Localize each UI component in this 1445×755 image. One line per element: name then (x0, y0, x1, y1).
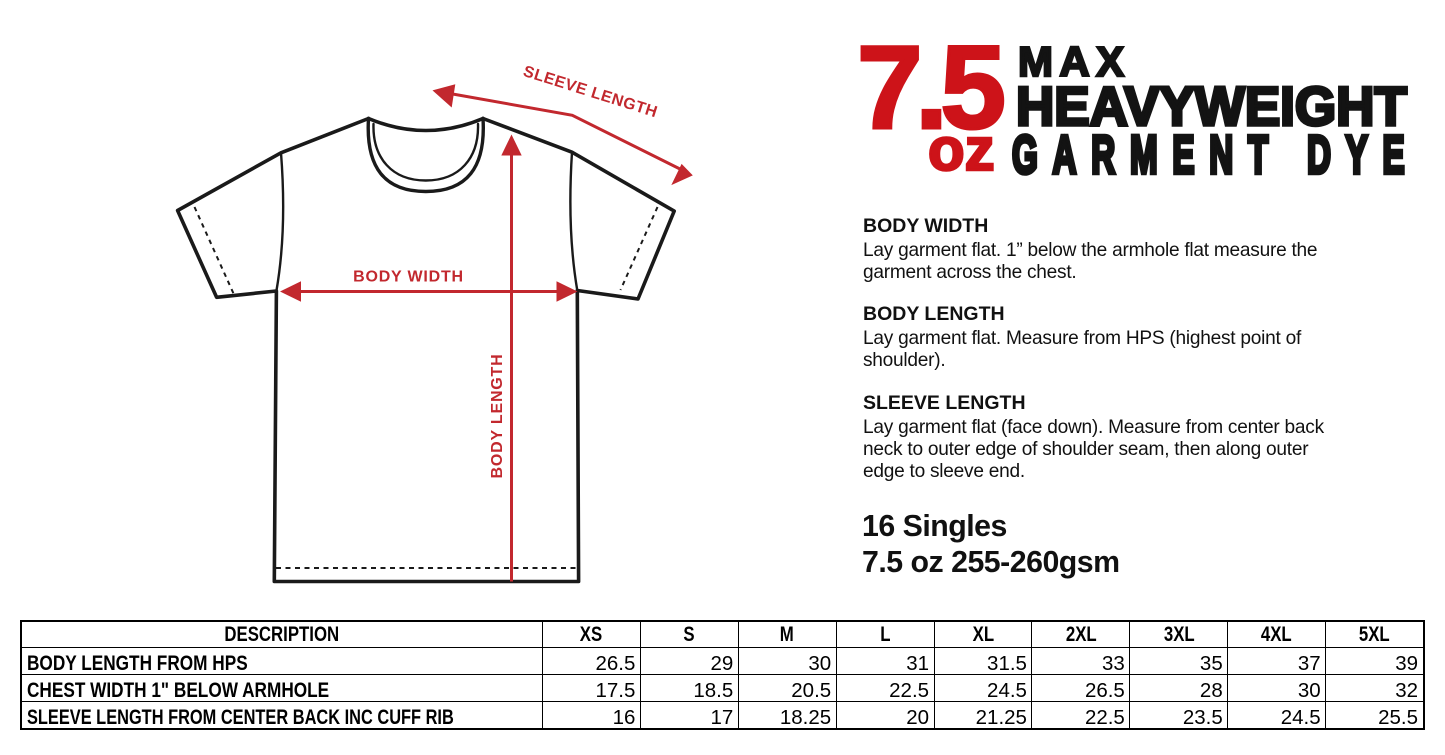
svg-text:BODY LENGTH: BODY LENGTH (489, 354, 506, 479)
svg-text:SLEEVE LENGTH: SLEEVE LENGTH (521, 63, 659, 121)
svg-text:BODY WIDTH: BODY WIDTH (353, 269, 464, 286)
